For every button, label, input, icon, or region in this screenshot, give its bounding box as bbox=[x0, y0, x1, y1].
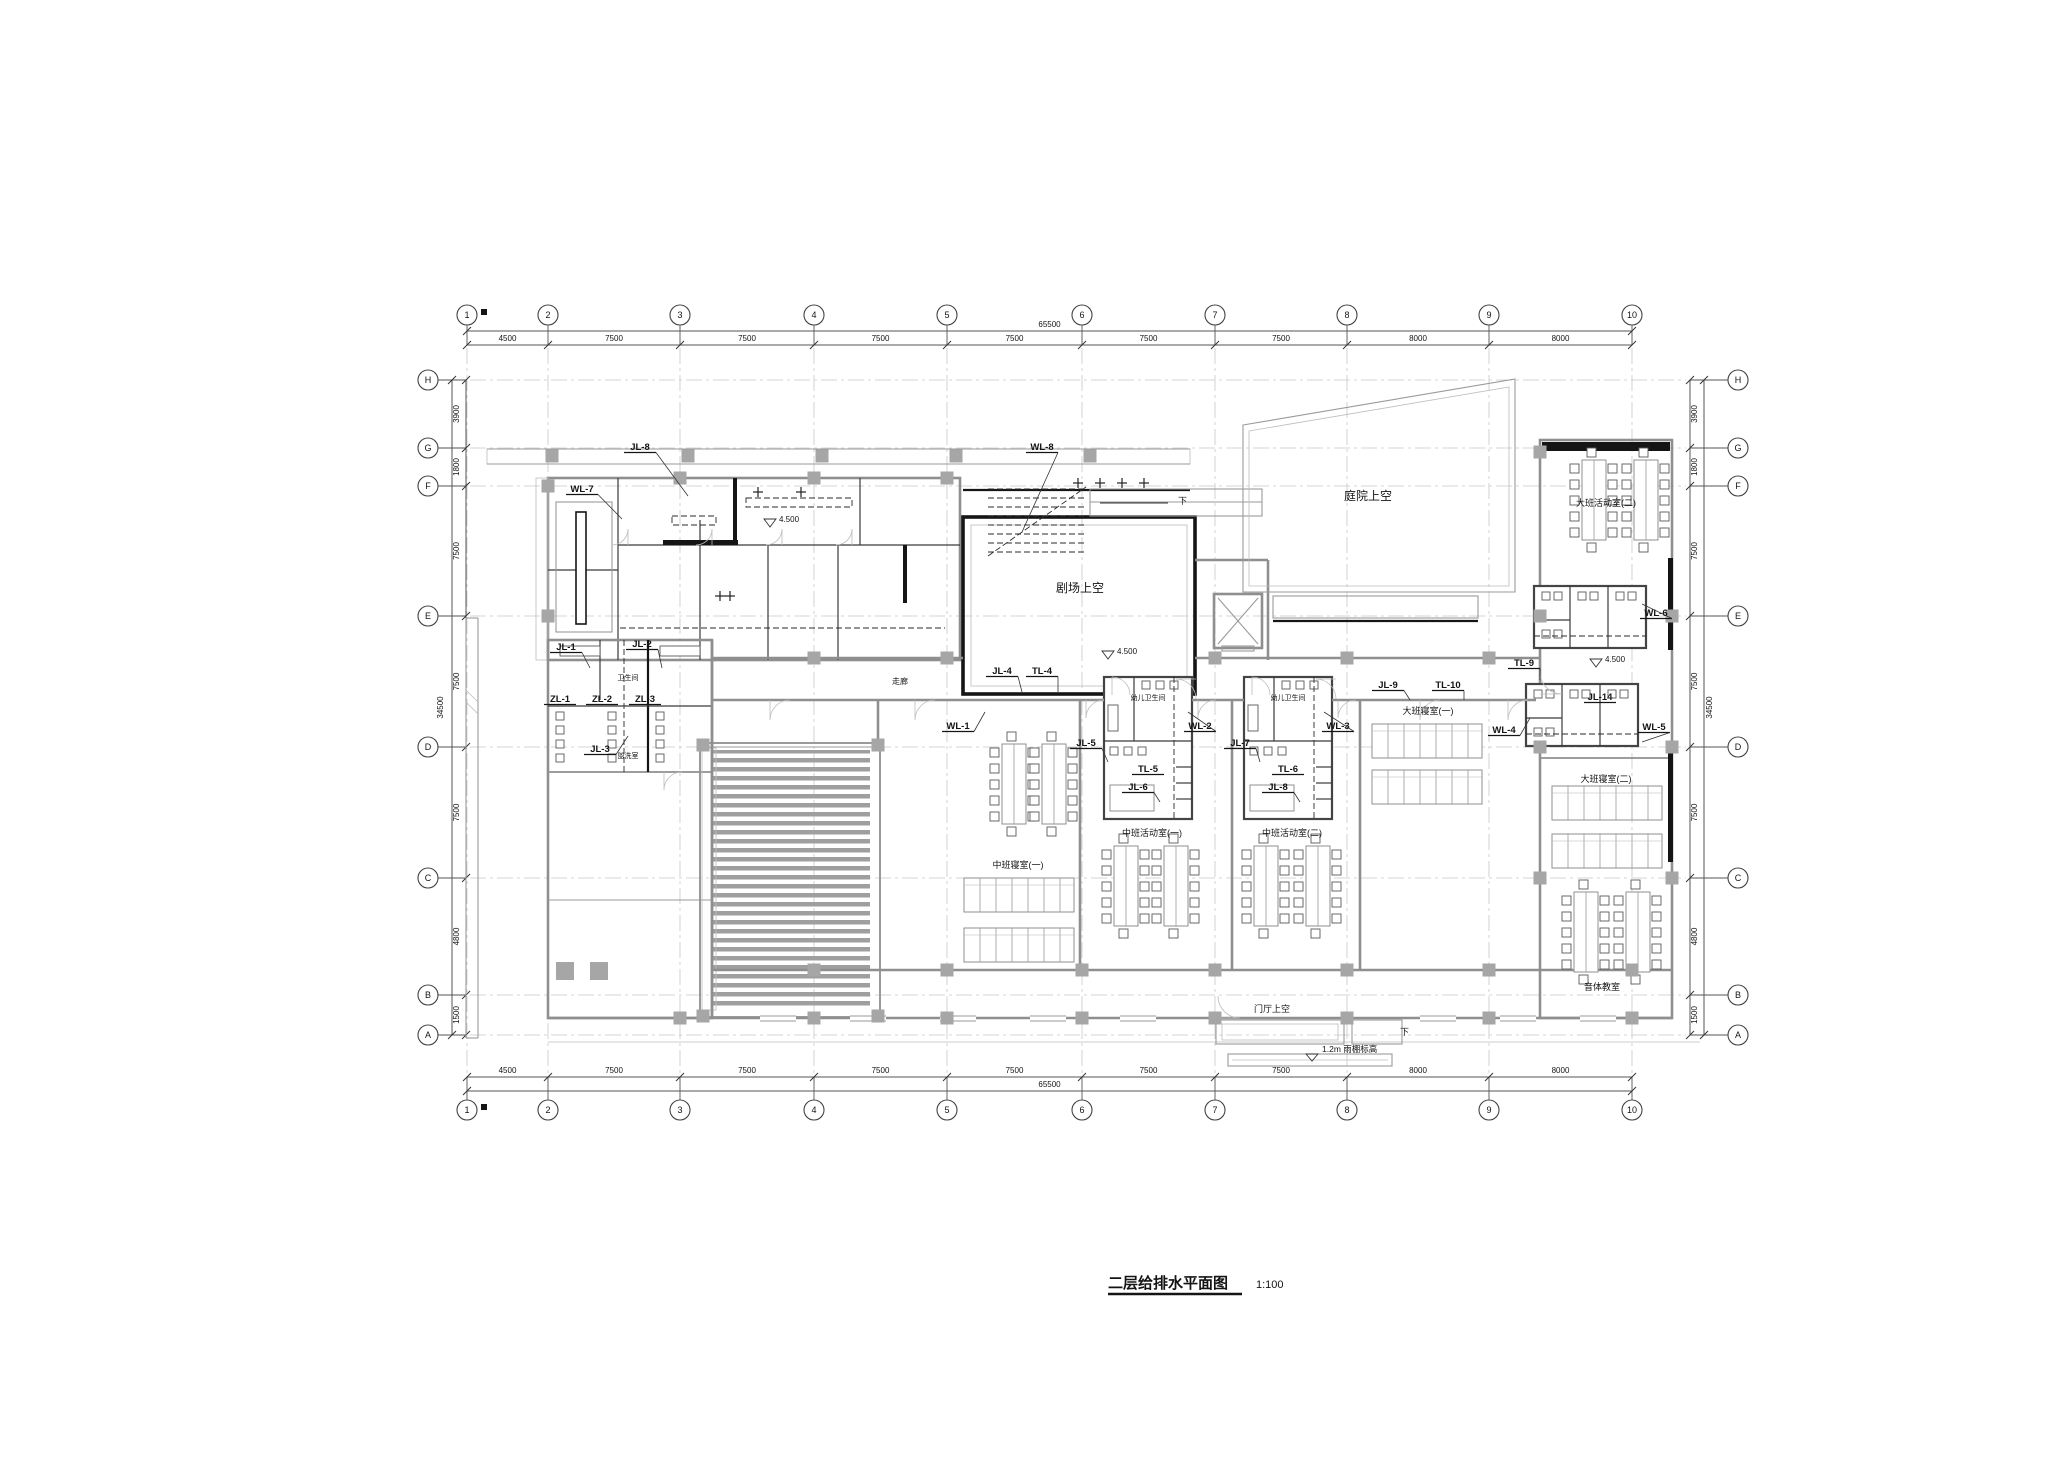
dimension-text: 1800 bbox=[1690, 458, 1699, 476]
grid-bubble-label: F bbox=[1735, 481, 1741, 491]
grid-bubble-label: 8 bbox=[1344, 310, 1349, 320]
column bbox=[1209, 1012, 1222, 1025]
riser-label: JL-8 bbox=[1268, 782, 1288, 793]
riser-label: ZL-3 bbox=[635, 694, 655, 705]
elevation-value: 4.500 bbox=[1117, 647, 1138, 656]
elevation-value: 4.500 bbox=[779, 515, 800, 524]
grid-bubble-label: F bbox=[425, 481, 431, 491]
grid-bubble-label: A bbox=[425, 1030, 431, 1040]
stair-dashed-upper bbox=[988, 487, 1086, 556]
drawing-scale: 1:100 bbox=[1256, 1279, 1284, 1291]
column bbox=[682, 450, 695, 463]
grid-bubble-label: D bbox=[1735, 742, 1742, 752]
dimension-text: 7500 bbox=[872, 334, 890, 343]
dimension-text: 7500 bbox=[738, 1066, 756, 1075]
column bbox=[1084, 450, 1097, 463]
grid-bubble-label: E bbox=[425, 611, 431, 621]
floor-plan-drawing: 1450027500375004750057500675007750088000… bbox=[0, 0, 2064, 1460]
column bbox=[950, 450, 963, 463]
dimension-text: 7500 bbox=[605, 334, 623, 343]
dimension-text: 4500 bbox=[499, 1066, 517, 1075]
dimension-text: 7500 bbox=[1006, 334, 1024, 343]
grid-bubble-label: 3 bbox=[677, 310, 682, 320]
column bbox=[1209, 964, 1222, 977]
riser-label: WL-1 bbox=[946, 721, 970, 732]
grid-bubble-label: 4 bbox=[811, 1105, 816, 1115]
riser-label: ZL-1 bbox=[550, 694, 571, 705]
room-label: 走廊 bbox=[892, 676, 908, 686]
dimension-text: 7500 bbox=[1140, 334, 1158, 343]
room-label: 幼儿卫生间 bbox=[1131, 693, 1166, 702]
column bbox=[1076, 964, 1089, 977]
riser-label: TL-10 bbox=[1435, 680, 1460, 691]
column bbox=[1534, 610, 1547, 623]
dimension-text: 8000 bbox=[1409, 1066, 1427, 1075]
column bbox=[697, 739, 710, 752]
grid-bubble-label: H bbox=[1735, 375, 1742, 385]
riser-label: JL-2 bbox=[632, 639, 652, 650]
column bbox=[1341, 1012, 1354, 1025]
column bbox=[674, 1012, 687, 1025]
grid-bubble-label: 2 bbox=[545, 1105, 550, 1115]
column bbox=[1483, 964, 1496, 977]
grid-bubble-label: C bbox=[1735, 873, 1742, 883]
dimension-text: 1500 bbox=[1690, 1006, 1699, 1024]
column bbox=[808, 472, 821, 485]
column bbox=[941, 1012, 954, 1025]
grid-bubble-label: H bbox=[425, 375, 432, 385]
dimension-text: 3900 bbox=[452, 405, 461, 423]
grid-bubble-label: 7 bbox=[1212, 310, 1217, 320]
dimension-text: 7500 bbox=[1006, 1066, 1024, 1075]
wing-top-left bbox=[536, 478, 960, 660]
column bbox=[1534, 872, 1547, 885]
column bbox=[808, 1012, 821, 1025]
entrance-bay bbox=[1216, 1020, 1402, 1066]
riser-label: JL-6 bbox=[1128, 782, 1148, 793]
room-label: 中班活动室(二) bbox=[1262, 827, 1322, 838]
dimension-text: 7500 bbox=[452, 672, 461, 690]
riser-label: WL-5 bbox=[1642, 722, 1666, 733]
grid-bubble-label: 1 bbox=[464, 1105, 469, 1115]
dimension-text: 4500 bbox=[499, 334, 517, 343]
door-arc bbox=[836, 529, 852, 545]
column bbox=[546, 450, 559, 463]
column bbox=[1483, 652, 1496, 665]
dimension-text: 7500 bbox=[1690, 672, 1699, 690]
room-label: 大班寝室(一) bbox=[1403, 705, 1454, 716]
column bbox=[941, 652, 954, 665]
door-arc bbox=[1198, 700, 1216, 718]
door-arc bbox=[612, 529, 628, 545]
dimension-text: 65500 bbox=[1038, 320, 1061, 329]
dimension-text: 1500 bbox=[452, 1006, 461, 1024]
column bbox=[1666, 872, 1679, 885]
grid-marker bbox=[481, 1104, 487, 1110]
dimension-text: 7500 bbox=[1272, 334, 1290, 343]
riser-label: JL-1 bbox=[556, 642, 576, 653]
grid-bubble-label: 10 bbox=[1627, 310, 1637, 320]
elevation-mark bbox=[764, 519, 776, 527]
door-arc bbox=[664, 772, 682, 790]
dimension-text: 7500 bbox=[872, 1066, 890, 1075]
grid-bubble-label: 3 bbox=[677, 1105, 682, 1115]
riser-label: TL-4 bbox=[1032, 666, 1053, 677]
dimension-text: 7500 bbox=[605, 1066, 623, 1075]
grid-bubble-label: 6 bbox=[1079, 1105, 1084, 1115]
stair-terrace bbox=[1273, 596, 1478, 618]
door-arc bbox=[915, 700, 935, 720]
grid-bubble-label: 10 bbox=[1627, 1105, 1637, 1115]
grid-bubble-label: D bbox=[425, 742, 432, 752]
grid-bubble-label: 2 bbox=[545, 310, 550, 320]
stair-direction-label: 下 bbox=[1400, 1027, 1409, 1037]
riser-label: ZL-2 bbox=[592, 694, 612, 705]
riser-label: TL-9 bbox=[1514, 658, 1534, 669]
grid-bubble-label: 1 bbox=[464, 310, 469, 320]
room-label: 卫生间 bbox=[618, 673, 639, 682]
riser-label: WL-7 bbox=[570, 484, 593, 495]
room-label: 中班活动室(一) bbox=[1122, 827, 1182, 838]
riser-label: JL-5 bbox=[1076, 738, 1096, 749]
column bbox=[1534, 741, 1547, 754]
grid-marker bbox=[481, 309, 487, 315]
door-arc bbox=[770, 700, 790, 720]
grid-bubble-label: G bbox=[1734, 443, 1741, 453]
elevator-shaft bbox=[1195, 560, 1268, 660]
grid-bubble-label: E bbox=[1735, 611, 1741, 621]
column bbox=[941, 472, 954, 485]
title-block: 二层给排水平面图 1:100 bbox=[1108, 1274, 1284, 1294]
room-label: 大班活动室(二) bbox=[1576, 497, 1636, 508]
riser-label: JL-4 bbox=[992, 666, 1012, 677]
grid-bubble-label: 9 bbox=[1486, 310, 1491, 320]
column bbox=[1341, 652, 1354, 665]
column bbox=[542, 610, 555, 623]
grid-bubble-label: B bbox=[1735, 990, 1741, 1000]
dimension-text: 65500 bbox=[1038, 1080, 1061, 1089]
room-label: 剧场上空 bbox=[1056, 581, 1104, 595]
column bbox=[1626, 1012, 1639, 1025]
elevation-mark bbox=[1102, 651, 1114, 659]
column bbox=[674, 472, 687, 485]
grid-bubble-label: 7 bbox=[1212, 1105, 1217, 1115]
riser-label: WL-8 bbox=[1030, 442, 1053, 453]
dimension-text: 34500 bbox=[436, 696, 445, 719]
dimension-text: 7500 bbox=[738, 334, 756, 343]
dimension-text: 7500 bbox=[452, 542, 461, 560]
column bbox=[1209, 652, 1222, 665]
atrium-louvers bbox=[700, 743, 880, 1017]
dimension-text: 7500 bbox=[1690, 803, 1699, 821]
door-arc bbox=[766, 529, 782, 545]
elevation-mark bbox=[1590, 659, 1602, 667]
grid-bubble-label: A bbox=[1735, 1030, 1741, 1040]
dimension-text: 7500 bbox=[1140, 1066, 1158, 1075]
column bbox=[1666, 741, 1679, 754]
riser-label: JL-14 bbox=[1588, 692, 1614, 703]
column bbox=[1626, 964, 1639, 977]
grid-bubble-label: 6 bbox=[1079, 310, 1084, 320]
dimension-text: 8000 bbox=[1552, 1066, 1570, 1075]
stair-entrance bbox=[1352, 1020, 1402, 1044]
riser-label: JL-8 bbox=[630, 442, 650, 453]
riser-label: TL-5 bbox=[1138, 764, 1159, 775]
elevation-value: 4.500 bbox=[1605, 655, 1626, 664]
grid-bubble-label: 4 bbox=[811, 310, 816, 320]
riser-label: JL-3 bbox=[590, 744, 610, 755]
column bbox=[872, 1010, 885, 1023]
grid-bubble-label: 8 bbox=[1344, 1105, 1349, 1115]
column bbox=[1534, 446, 1547, 459]
room-label: 门厅上空 bbox=[1254, 1003, 1290, 1014]
room-label: 中班寝室(一) bbox=[993, 859, 1044, 870]
dimension-text: 8000 bbox=[1409, 334, 1427, 343]
column bbox=[816, 450, 829, 463]
column bbox=[697, 1010, 710, 1023]
riser-label: JL-9 bbox=[1378, 680, 1398, 691]
riser-label: WL-6 bbox=[1644, 608, 1667, 619]
canopy-note: 1.2m 雨棚标高 bbox=[1322, 1044, 1377, 1054]
stair-direction-label: 下 bbox=[1178, 496, 1187, 506]
column bbox=[1483, 1012, 1496, 1025]
dimension-text: 3900 bbox=[1690, 405, 1699, 423]
riser-label: JL-7 bbox=[1230, 738, 1250, 749]
riser-label: WL-4 bbox=[1492, 725, 1516, 736]
room-label: 盥洗室 bbox=[618, 751, 639, 760]
dimension-text: 4800 bbox=[452, 927, 461, 945]
room-label: 幼儿卫生间 bbox=[1271, 693, 1306, 702]
dimension-text: 8000 bbox=[1552, 334, 1570, 343]
column bbox=[1341, 964, 1354, 977]
grid-bubble-label: 5 bbox=[944, 310, 949, 320]
column bbox=[872, 739, 885, 752]
drawing-sheet: 1450027500375004750057500675007750088000… bbox=[0, 0, 2064, 1460]
column bbox=[1076, 1012, 1089, 1025]
column bbox=[808, 652, 821, 665]
left-screen-wall bbox=[466, 618, 478, 1038]
grid-bubble-label: 5 bbox=[944, 1105, 949, 1115]
drawing-title: 二层给排水平面图 bbox=[1108, 1274, 1228, 1292]
walls-layer bbox=[466, 379, 1700, 1066]
grid-bubble-label: C bbox=[425, 873, 432, 883]
dimension-text: 7500 bbox=[1690, 542, 1699, 560]
riser-label: TL-6 bbox=[1278, 764, 1298, 775]
room-label: 音体教室 bbox=[1584, 981, 1620, 992]
room-label: 大班寝室(二) bbox=[1581, 773, 1632, 784]
column bbox=[941, 964, 954, 977]
grid-bubble-label: B bbox=[425, 990, 431, 1000]
dimension-text: 7500 bbox=[452, 803, 461, 821]
dimension-text: 1800 bbox=[452, 458, 461, 476]
column bbox=[542, 480, 555, 493]
grid-bubble-label: G bbox=[424, 443, 431, 453]
dimension-text: 4800 bbox=[1690, 927, 1699, 945]
block-left-toilets bbox=[548, 640, 712, 1018]
dimension-text: 34500 bbox=[1705, 696, 1714, 719]
dimension-text: 7500 bbox=[1272, 1066, 1290, 1075]
room-label: 庭院上空 bbox=[1344, 488, 1392, 503]
grid-bubble-label: 9 bbox=[1486, 1105, 1491, 1115]
door-arc bbox=[1086, 700, 1104, 718]
column bbox=[808, 964, 821, 977]
